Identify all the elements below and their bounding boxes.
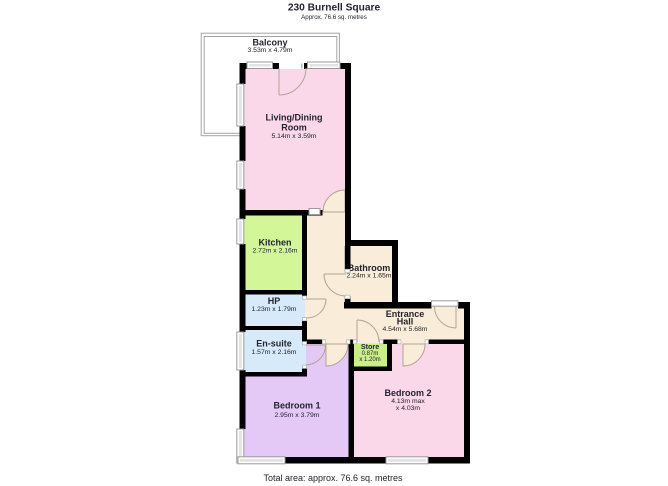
svg-text:4.54m x 5.68m: 4.54m x 5.68m [383, 326, 428, 333]
svg-text:230 Burnell Square: 230 Burnell Square [288, 3, 381, 14]
svg-text:Hall: Hall [397, 316, 414, 326]
svg-text:Bathroom: Bathroom [348, 263, 391, 273]
svg-text:2.95m x 3.79m: 2.95m x 3.79m [275, 412, 320, 419]
svg-text:1.57m x 2.16m: 1.57m x 2.16m [252, 349, 297, 356]
svg-text:Bedroom 2: Bedroom 2 [384, 388, 431, 398]
svg-text:x 1.20m: x 1.20m [359, 357, 380, 363]
svg-text:x 4.03m: x 4.03m [396, 405, 421, 412]
svg-text:3.53m x 4.79m: 3.53m x 4.79m [248, 47, 293, 54]
svg-text:Balcony: Balcony [252, 37, 287, 47]
svg-text:Store: Store [361, 342, 379, 351]
svg-text:1.23m x 1.79m: 1.23m x 1.79m [252, 306, 297, 313]
svg-text:Bedroom 1: Bedroom 1 [273, 400, 320, 410]
svg-text:Approx. 76.6 sq. metres: Approx. 76.6 sq. metres [301, 14, 367, 21]
svg-text:Kitchen: Kitchen [258, 238, 291, 248]
svg-text:5.14m x 3.59m: 5.14m x 3.59m [272, 133, 317, 140]
svg-text:Living/Dining: Living/Dining [266, 112, 323, 122]
svg-text:Total area: approx. 76.6 sq. m: Total area: approx. 76.6 sq. metres [263, 473, 403, 483]
svg-text:Room: Room [281, 122, 307, 132]
svg-text:HP: HP [268, 296, 281, 306]
svg-text:2.24m x 1.65m: 2.24m x 1.65m [347, 273, 392, 280]
svg-text:2.72m x 2.16m: 2.72m x 2.16m [253, 247, 298, 254]
svg-text:En-suite: En-suite [256, 338, 292, 348]
svg-text:4.13m max: 4.13m max [391, 398, 425, 405]
